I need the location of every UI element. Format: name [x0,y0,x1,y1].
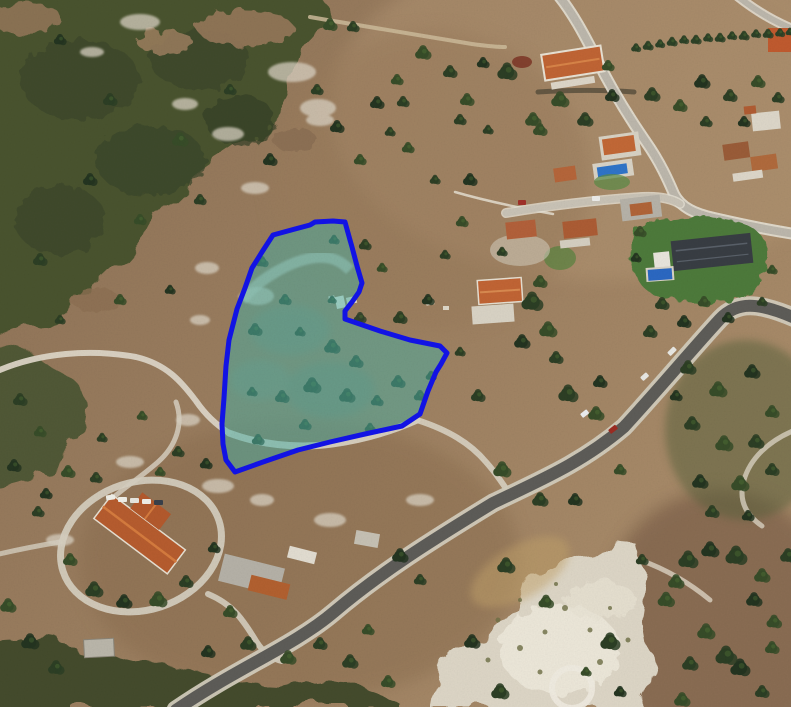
photo-grain [0,0,791,707]
satellite-map-view [0,0,791,707]
aerial-imagery [0,0,791,707]
